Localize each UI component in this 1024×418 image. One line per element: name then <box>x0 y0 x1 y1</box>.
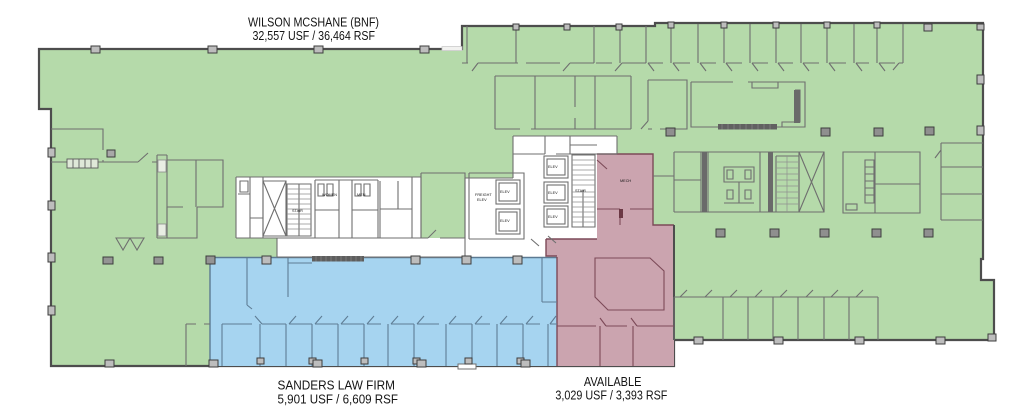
svg-text:ELEV: ELEV <box>500 219 510 223</box>
svg-text:STAIR: STAIR <box>292 209 303 213</box>
svg-text:ELEV: ELEV <box>500 190 510 194</box>
svg-text:WOMEN: WOMEN <box>322 193 337 197</box>
svg-text:STAIR: STAIR <box>575 189 586 193</box>
svg-text:FREIGHT: FREIGHT <box>475 193 492 197</box>
svg-text:MECH: MECH <box>620 179 631 183</box>
svg-text:MEN: MEN <box>357 193 366 197</box>
svg-text:SANDERS LAW FIRM: SANDERS LAW FIRM <box>278 378 396 393</box>
svg-text:5,901 USF / 6,609 RSF: 5,901 USF / 6,609 RSF <box>278 391 399 406</box>
svg-text:ELEV: ELEV <box>548 215 558 219</box>
svg-text:ELEV: ELEV <box>548 165 558 169</box>
svg-text:3,029 USF / 3,393 RSF: 3,029 USF / 3,393 RSF <box>555 388 667 403</box>
svg-text:32,557 USF / 36,464 RSF: 32,557 USF / 36,464 RSF <box>253 28 376 43</box>
svg-text:ELEV: ELEV <box>477 198 487 202</box>
svg-text:ELEV: ELEV <box>548 191 558 195</box>
